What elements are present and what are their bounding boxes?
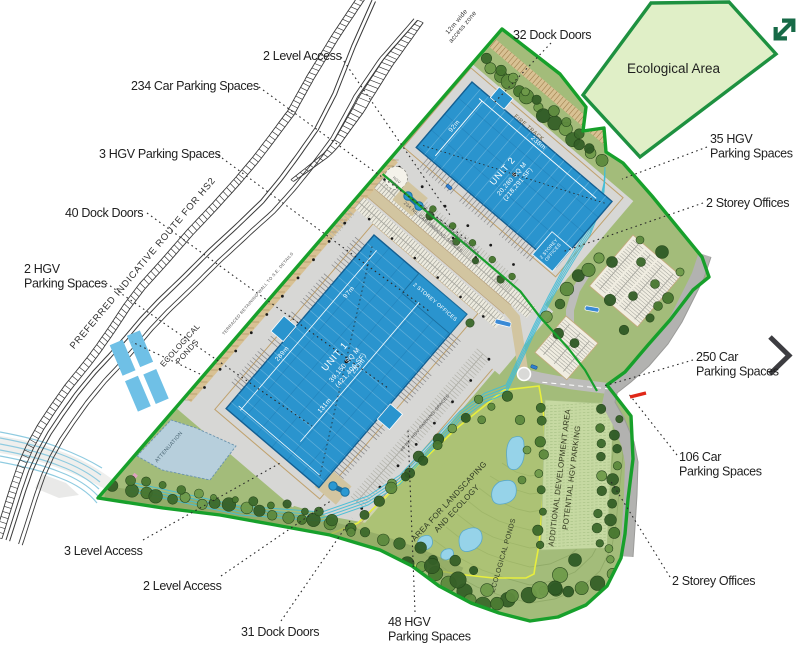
svg-text:31 Dock Doors: 31 Dock Doors — [241, 625, 319, 639]
svg-text:106 Car: 106 Car — [679, 450, 721, 464]
svg-text:40 Dock Doors: 40 Dock Doors — [65, 206, 143, 220]
svg-text:2 Storey Offices: 2 Storey Offices — [706, 196, 789, 210]
svg-text:Parking Spaces: Parking Spaces — [24, 277, 107, 291]
svg-text:Ecological Area: Ecological Area — [627, 61, 721, 76]
svg-text:2 HGV: 2 HGV — [24, 262, 61, 276]
svg-text:Parking Spaces: Parking Spaces — [710, 147, 793, 161]
svg-text:250 Car: 250 Car — [696, 350, 738, 364]
svg-text:48 HGV: 48 HGV — [388, 615, 431, 629]
svg-text:2 Storey Offices: 2 Storey Offices — [672, 574, 755, 588]
svg-text:Parking Spaces: Parking Spaces — [388, 630, 471, 644]
svg-text:Parking Spaces: Parking Spaces — [679, 465, 762, 479]
svg-text:32 Dock Doors: 32 Dock Doors — [513, 28, 591, 42]
svg-text:2 Level Access: 2 Level Access — [263, 49, 342, 63]
svg-text:234 Car Parking Spaces: 234 Car Parking Spaces — [131, 79, 259, 93]
svg-text:3 Level Access: 3 Level Access — [64, 544, 143, 558]
svg-text:Parking Spaces: Parking Spaces — [696, 365, 779, 379]
svg-text:2 Level Access: 2 Level Access — [143, 579, 222, 593]
svg-text:35 HGV: 35 HGV — [710, 132, 753, 146]
svg-text:3 HGV Parking Spaces: 3 HGV Parking Spaces — [99, 147, 221, 161]
